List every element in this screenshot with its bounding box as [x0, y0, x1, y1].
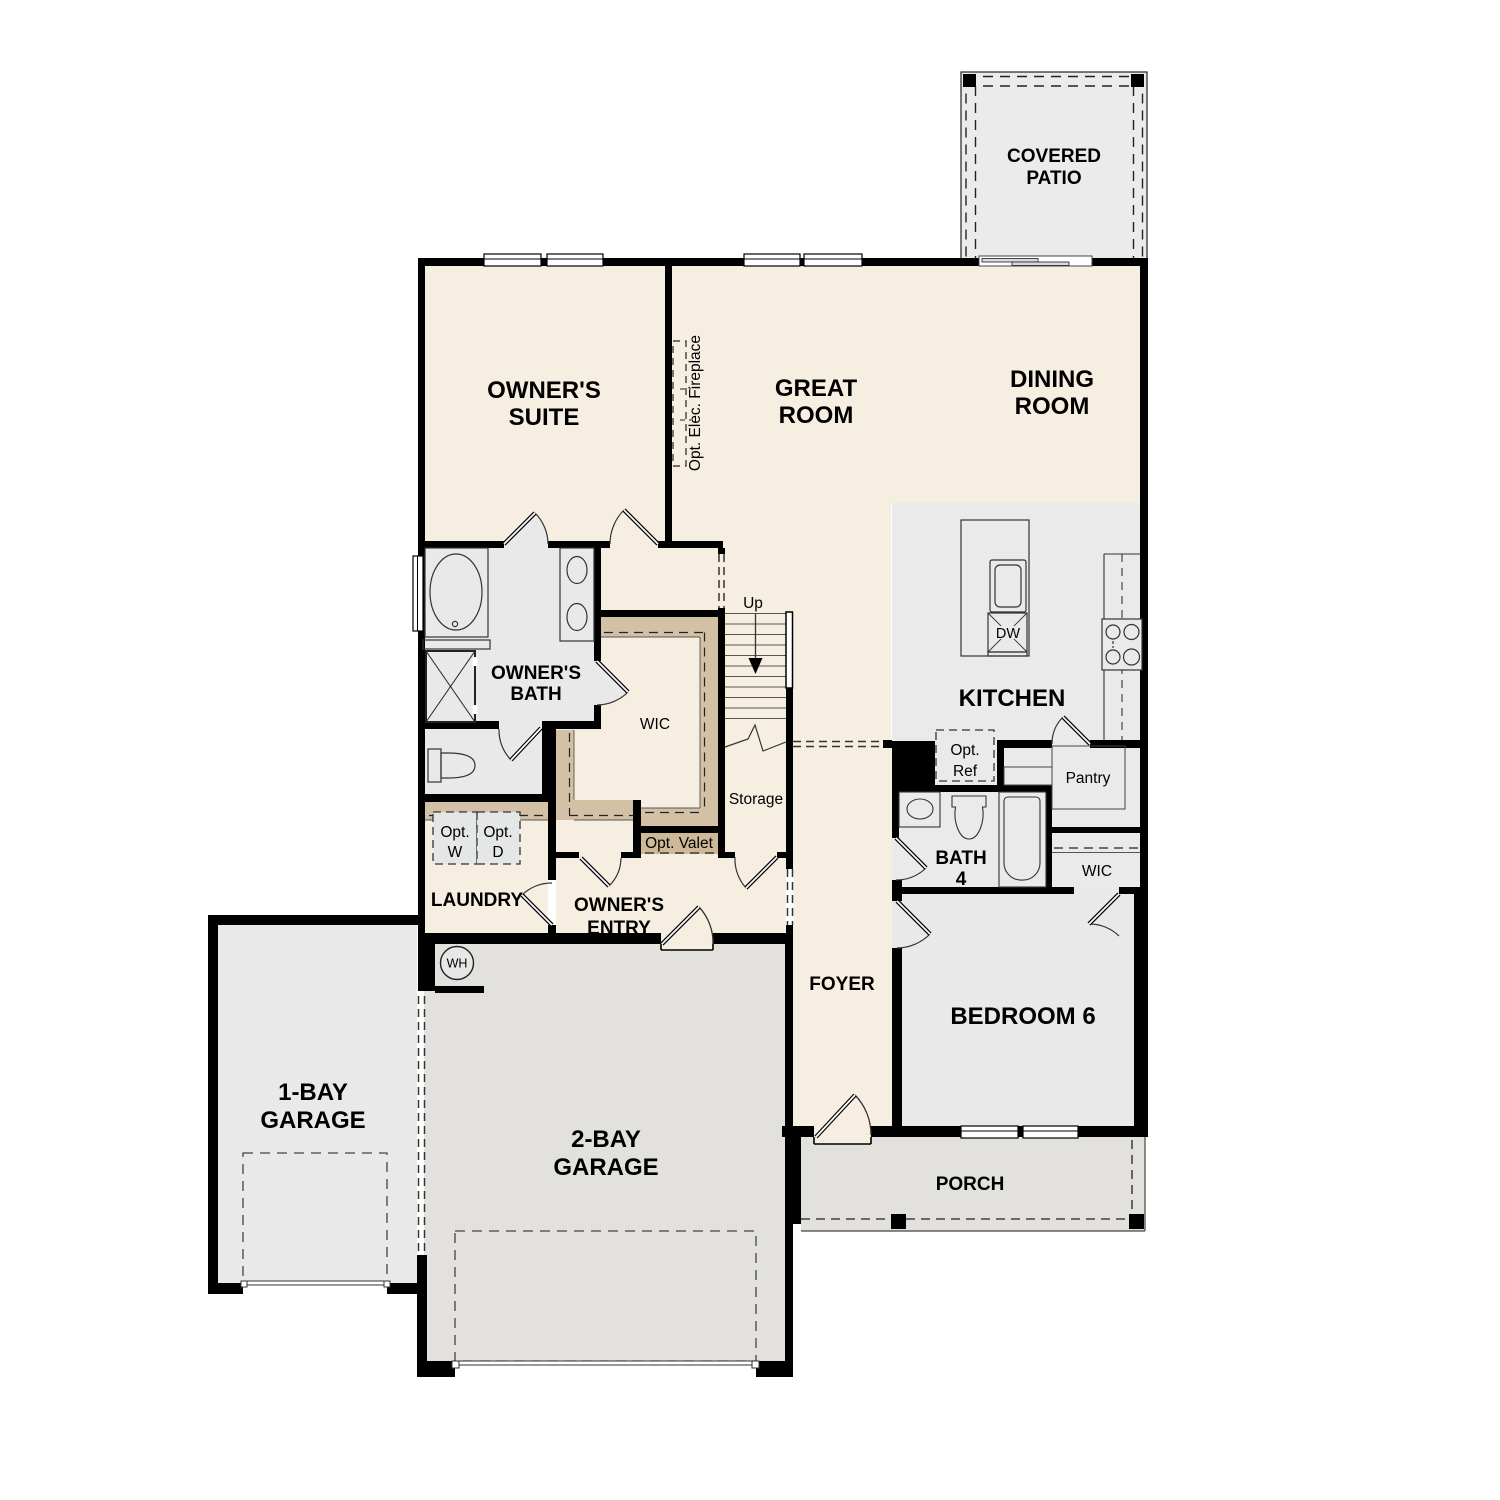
svg-text:KITCHEN: KITCHEN [959, 685, 1066, 712]
svg-text:ROOM: ROOM [779, 402, 854, 429]
svg-text:GARAGE: GARAGE [553, 1154, 658, 1181]
svg-text:D: D [492, 844, 503, 861]
svg-text:2-BAY: 2-BAY [571, 1126, 641, 1153]
svg-text:OWNER'S: OWNER'S [491, 663, 581, 684]
svg-text:4: 4 [956, 869, 967, 890]
svg-text:BEDROOM 6: BEDROOM 6 [950, 1003, 1095, 1030]
svg-text:1-BAY: 1-BAY [278, 1079, 348, 1106]
svg-text:OWNER'S: OWNER'S [574, 895, 664, 916]
svg-text:Opt.: Opt. [440, 824, 469, 841]
svg-text:SUITE: SUITE [509, 404, 580, 431]
svg-text:PORCH: PORCH [936, 1174, 1005, 1195]
svg-text:Opt.: Opt. [483, 824, 512, 841]
svg-text:WH: WH [447, 957, 468, 971]
svg-text:BATH: BATH [510, 684, 561, 705]
svg-text:Ref: Ref [953, 763, 978, 780]
svg-text:Opt. Valet: Opt. Valet [645, 835, 713, 852]
svg-text:ENTRY: ENTRY [587, 918, 651, 939]
svg-text:Pantry: Pantry [1066, 770, 1111, 787]
svg-text:BATH: BATH [935, 848, 986, 869]
svg-text:WIC: WIC [1082, 863, 1112, 880]
svg-text:DW: DW [996, 626, 1020, 642]
svg-text:GARAGE: GARAGE [260, 1107, 365, 1134]
svg-text:WIC: WIC [640, 716, 670, 733]
svg-text:Storage: Storage [729, 791, 783, 808]
svg-text:FOYER: FOYER [809, 974, 875, 995]
svg-text:PATIO: PATIO [1026, 168, 1081, 189]
svg-text:W: W [448, 844, 463, 861]
svg-text:Opt.: Opt. [950, 742, 979, 759]
svg-text:COVERED: COVERED [1007, 146, 1101, 167]
svg-text:OWNER'S: OWNER'S [487, 377, 601, 404]
svg-text:Up: Up [743, 595, 763, 612]
svg-text:DINING: DINING [1010, 366, 1094, 393]
svg-text:Opt. Elec. Fireplace: Opt. Elec. Fireplace [687, 335, 704, 471]
svg-text:LAUNDRY: LAUNDRY [431, 890, 524, 911]
svg-text:ROOM: ROOM [1015, 393, 1090, 420]
svg-text:GREAT: GREAT [775, 375, 858, 402]
